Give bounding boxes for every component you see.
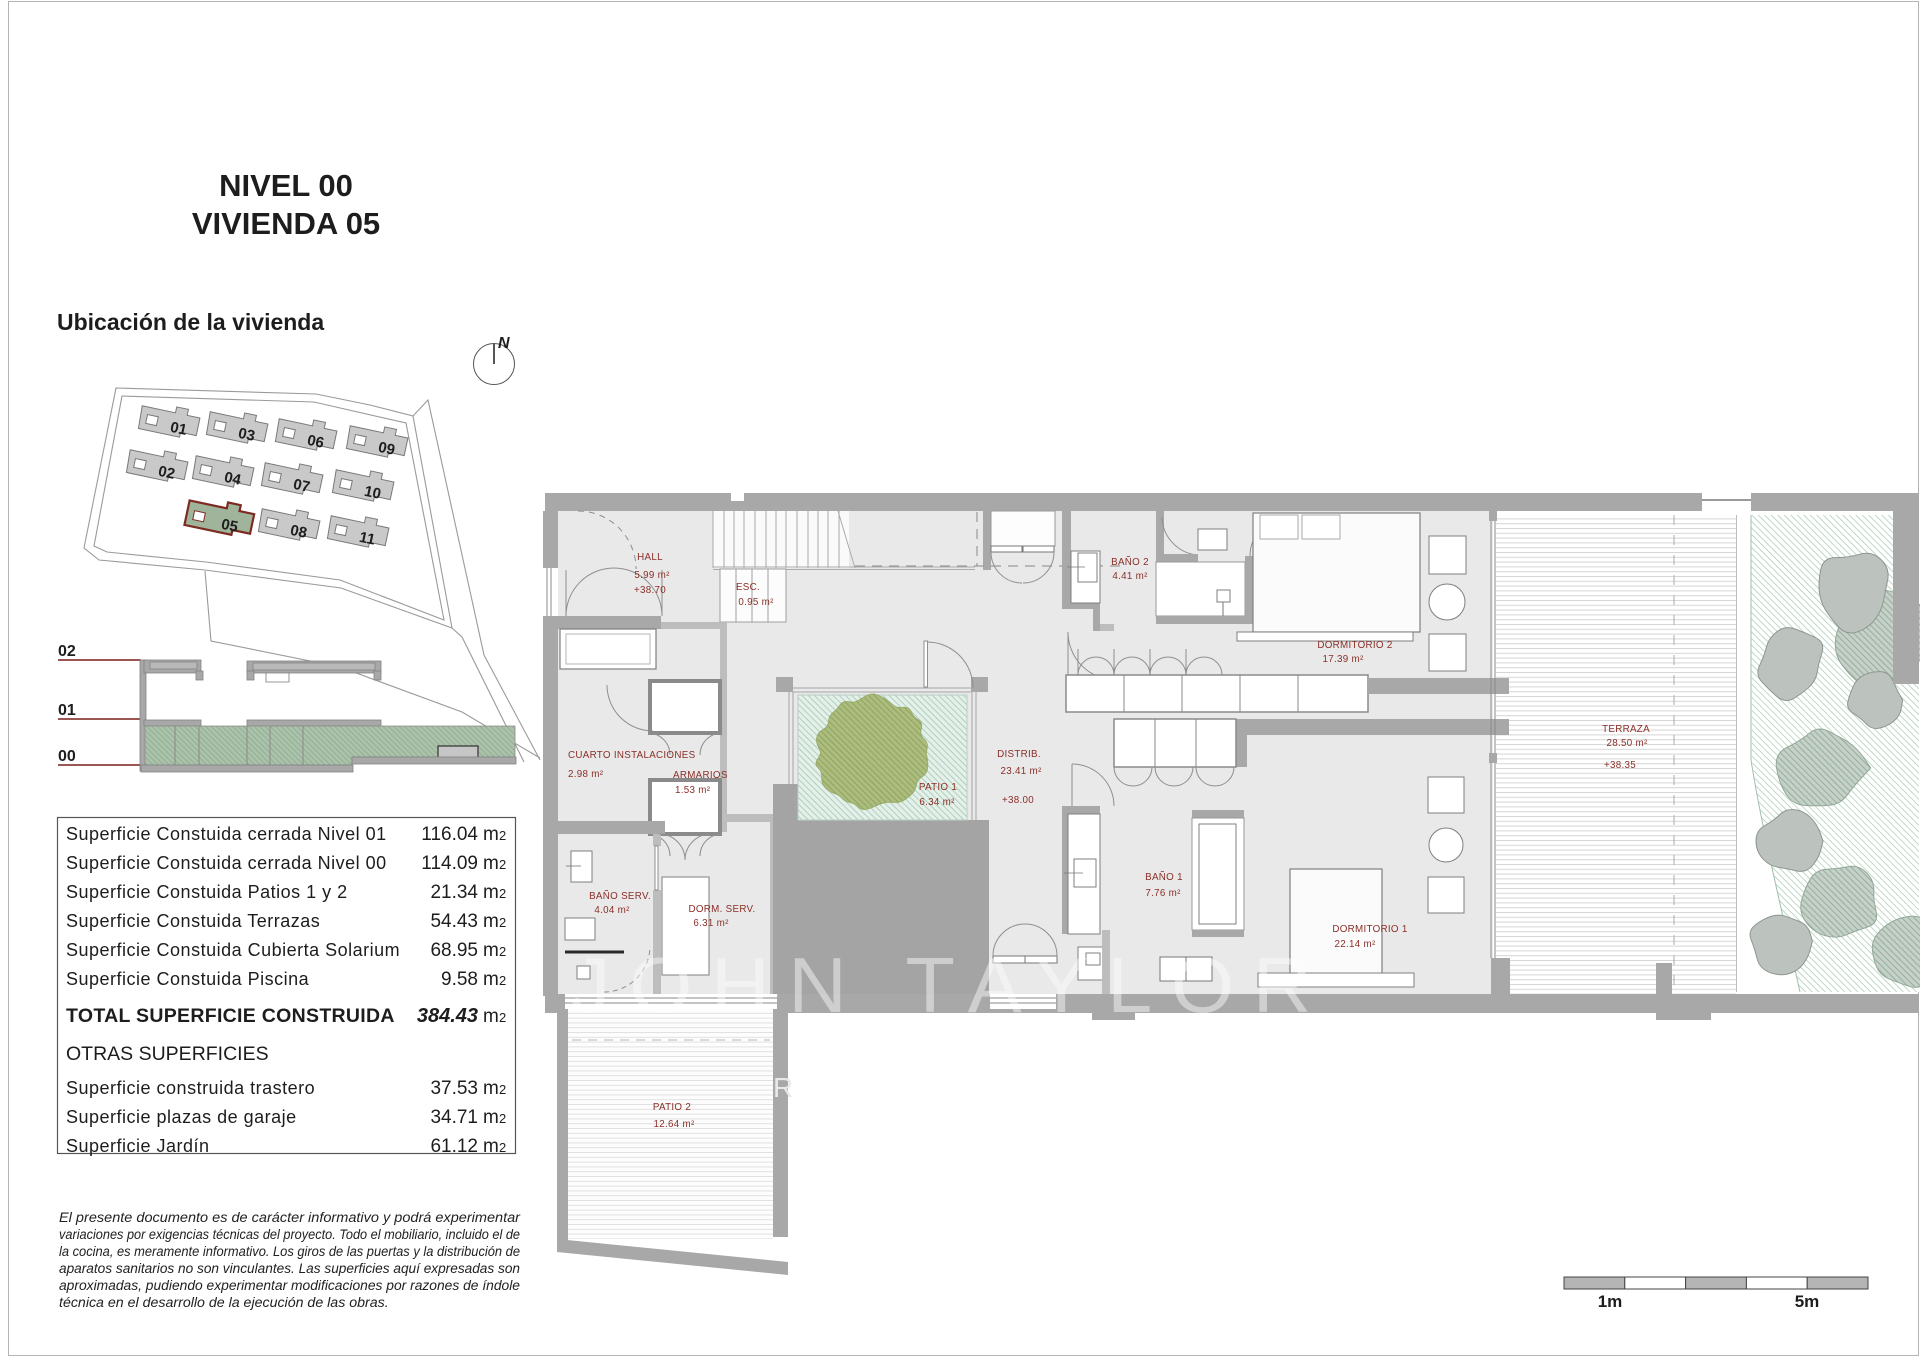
svg-text:28.50 m²: 28.50 m² xyxy=(1606,738,1647,749)
svg-text:NIVEL 00: NIVEL 00 xyxy=(219,168,353,203)
svg-text:TOTAL SUPERFICIE CONSTRUIDA: TOTAL SUPERFICIE CONSTRUIDA xyxy=(66,1005,395,1027)
svg-text:2: 2 xyxy=(499,1111,506,1126)
svg-text:R: R xyxy=(773,1072,793,1103)
svg-text:2: 2 xyxy=(499,1010,506,1025)
svg-text:HALL: HALL xyxy=(637,552,663,563)
svg-text:2: 2 xyxy=(499,1140,506,1155)
svg-text:22.14 m²: 22.14 m² xyxy=(1334,939,1375,950)
svg-text:la cocina, es meramente inform: la cocina, es meramente informativo. Los… xyxy=(59,1244,520,1260)
svg-text:03: 03 xyxy=(237,425,257,445)
svg-text:23.41 m²: 23.41 m² xyxy=(1000,766,1041,777)
svg-text:384.43: 384.43 xyxy=(417,1005,478,1027)
svg-text:34.71: 34.71 xyxy=(430,1107,478,1128)
svg-text:Superficie Constuida cerrada N: Superficie Constuida cerrada Nivel 01 xyxy=(66,824,387,844)
svg-text:Superficie Constuida cerrada N: Superficie Constuida cerrada Nivel 00 xyxy=(66,853,387,873)
svg-text:2: 2 xyxy=(499,828,506,843)
svg-text:variaciones por exigencias téc: variaciones por exigencias técnicas del … xyxy=(59,1227,520,1243)
svg-text:Superficie Constuida Terrazas: Superficie Constuida Terrazas xyxy=(66,911,320,931)
svg-text:m: m xyxy=(483,1136,499,1157)
svg-text:68.95: 68.95 xyxy=(430,940,478,961)
svg-text:Ubicación de la vivienda: Ubicación de la vivienda xyxy=(57,309,324,335)
svg-text:DISTRIB.: DISTRIB. xyxy=(997,749,1041,760)
svg-text:Superficie Constuida Patios 1: Superficie Constuida Patios 1 y 2 xyxy=(66,882,348,902)
svg-text:JOHN TAYLOR: JOHN TAYLOR xyxy=(570,941,1330,1029)
svg-text:08: 08 xyxy=(289,522,309,542)
svg-text:BAÑO 1: BAÑO 1 xyxy=(1145,872,1183,883)
svg-text:2: 2 xyxy=(499,886,506,901)
svg-text:2: 2 xyxy=(499,915,506,930)
svg-text:ESC.: ESC. xyxy=(736,582,760,593)
svg-text:00: 00 xyxy=(58,748,76,765)
svg-text:DORM. SERV.: DORM. SERV. xyxy=(689,904,756,915)
svg-text:+38.00: +38.00 xyxy=(1002,795,1034,806)
svg-text:37.53: 37.53 xyxy=(430,1078,478,1099)
svg-text:Superficie plazas de garaje: Superficie plazas de garaje xyxy=(66,1107,297,1127)
svg-text:9.58: 9.58 xyxy=(441,969,478,990)
svg-text:12.64 m²: 12.64 m² xyxy=(653,1119,694,1130)
svg-text:ARMARIOS: ARMARIOS xyxy=(673,770,728,781)
svg-text:m: m xyxy=(483,882,499,903)
svg-text:114.09: 114.09 xyxy=(421,853,478,874)
svg-text:116.04: 116.04 xyxy=(421,824,478,845)
svg-text:m: m xyxy=(483,1078,499,1099)
svg-text:5.99 m²: 5.99 m² xyxy=(634,570,670,581)
svg-text:aproximadas, pudiendo experi: aproximadas, pudiendo experimentar modif… xyxy=(59,1278,520,1294)
svg-text:2: 2 xyxy=(499,857,506,872)
svg-text:6.34 m²: 6.34 m² xyxy=(919,797,955,808)
svg-text:01: 01 xyxy=(58,702,76,719)
svg-text:aparatos sanitarios no son: aparatos sanitarios no son vinculantes. … xyxy=(59,1261,520,1277)
svg-text:01: 01 xyxy=(169,419,189,439)
svg-text:técnica en el desarrollo d: técnica en el desarrollo de la ejecución… xyxy=(59,1295,389,1311)
svg-text:17.39 m²: 17.39 m² xyxy=(1322,654,1363,665)
svg-text:VIVIENDA 05: VIVIENDA 05 xyxy=(192,206,380,241)
svg-text:m: m xyxy=(483,911,499,932)
svg-text:DORMITORIO 2: DORMITORIO 2 xyxy=(1317,640,1392,651)
svg-text:TERRAZA: TERRAZA xyxy=(1602,724,1650,735)
svg-text:N: N xyxy=(498,335,510,352)
svg-text:1m: 1m xyxy=(1598,1292,1623,1311)
svg-text:OTRAS SUPERFICIES: OTRAS SUPERFICIES xyxy=(66,1043,269,1065)
svg-text:BAÑO SERV.: BAÑO SERV. xyxy=(589,891,651,902)
svg-text:+38.35: +38.35 xyxy=(1604,760,1636,771)
svg-text:11: 11 xyxy=(358,529,377,549)
svg-text:1.53 m²: 1.53 m² xyxy=(675,785,711,796)
svg-text:Superficie Jardín: Superficie Jardín xyxy=(66,1136,210,1156)
svg-text:21.34: 21.34 xyxy=(430,882,478,903)
svg-text:m: m xyxy=(483,1107,499,1128)
svg-text:Superficie Constuida Piscina: Superficie Constuida Piscina xyxy=(66,969,310,989)
svg-text:2.98 m²: 2.98 m² xyxy=(568,769,604,780)
svg-text:Superficie Constuida Cubierta: Superficie Constuida Cubierta Solarium xyxy=(66,940,400,960)
svg-text:02: 02 xyxy=(58,643,76,660)
svg-text:61.12: 61.12 xyxy=(430,1136,478,1157)
svg-text:10: 10 xyxy=(363,483,383,503)
svg-text:2: 2 xyxy=(499,973,506,988)
svg-text:7.76 m²: 7.76 m² xyxy=(1145,888,1181,899)
svg-text:Superficie construida trastero: Superficie construida trastero xyxy=(66,1078,315,1098)
svg-text:6.31 m²: 6.31 m² xyxy=(693,918,729,929)
svg-text:5m: 5m xyxy=(1795,1292,1820,1311)
svg-text:DORMITORIO 1: DORMITORIO 1 xyxy=(1332,924,1407,935)
svg-text:4.41 m²: 4.41 m² xyxy=(1112,571,1148,582)
svg-text:+38.70: +38.70 xyxy=(634,585,666,596)
svg-text:m: m xyxy=(483,1006,499,1027)
svg-text:BAÑO 2: BAÑO 2 xyxy=(1111,557,1149,568)
svg-text:04: 04 xyxy=(223,469,243,489)
svg-text:07: 07 xyxy=(292,476,312,496)
svg-text:2: 2 xyxy=(499,1082,506,1097)
svg-text:0.95 m²: 0.95 m² xyxy=(738,597,774,608)
svg-text:05: 05 xyxy=(220,516,240,536)
svg-text:09: 09 xyxy=(377,439,397,459)
svg-text:CUARTO INSTALACIONES: CUARTO INSTALACIONES xyxy=(568,750,696,761)
svg-text:El presente documento es d: El presente documento es de carácter inf… xyxy=(59,1210,521,1226)
svg-text:06: 06 xyxy=(306,432,326,452)
svg-text:m: m xyxy=(483,824,499,845)
svg-text:m: m xyxy=(483,940,499,961)
svg-text:02: 02 xyxy=(157,463,177,483)
svg-text:m: m xyxy=(483,969,499,990)
svg-text:4.04 m²: 4.04 m² xyxy=(594,905,630,916)
svg-text:2: 2 xyxy=(499,944,506,959)
svg-text:m: m xyxy=(483,853,499,874)
svg-text:54.43: 54.43 xyxy=(430,911,478,932)
svg-text:PATIO 2: PATIO 2 xyxy=(653,1102,691,1113)
svg-text:PATIO 1: PATIO 1 xyxy=(919,782,957,793)
